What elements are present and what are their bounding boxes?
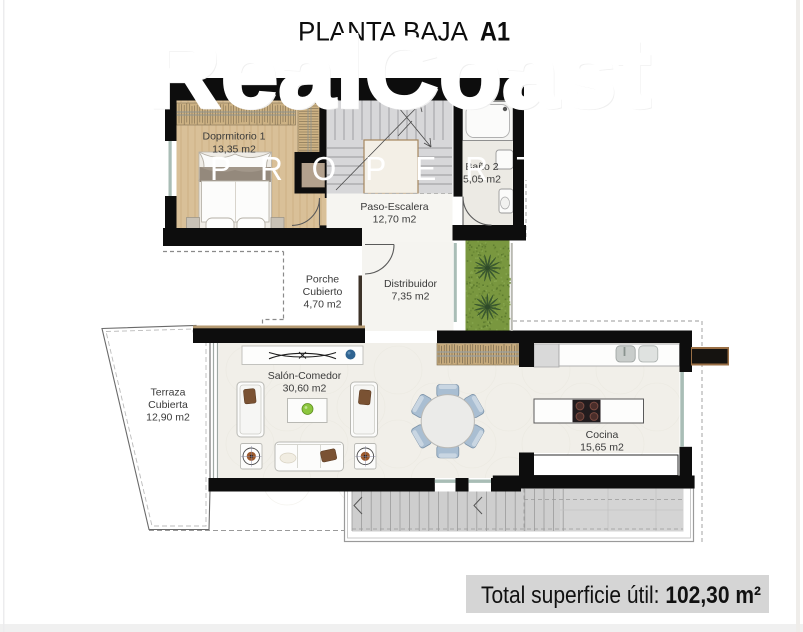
svg-text:Distribuidor: Distribuidor: [384, 278, 438, 290]
svg-text:Porche: Porche: [306, 274, 339, 286]
svg-text:12,90 m2: 12,90 m2: [146, 412, 190, 424]
svg-text:12,70 m2: 12,70 m2: [373, 214, 417, 226]
svg-text:Cubierta: Cubierta: [148, 399, 188, 411]
svg-text:RealCoast: RealCoast: [146, 17, 651, 129]
svg-text:Doprmitorio 1: Doprmitorio 1: [202, 131, 265, 143]
svg-text:Terraza: Terraza: [150, 387, 185, 399]
svg-text:7,35 m2: 7,35 m2: [392, 291, 430, 303]
svg-text:4,70 m2: 4,70 m2: [304, 299, 342, 311]
svg-text:30,60 m2: 30,60 m2: [283, 383, 327, 395]
svg-text:Total superficie útil: 102,30: Total superficie útil: 102,30 m²: [481, 582, 761, 609]
svg-text:Cocina: Cocina: [586, 429, 619, 441]
svg-text:PROPERTIES: PROPERTIES: [210, 150, 702, 187]
svg-text:Paso-Escalera: Paso-Escalera: [360, 201, 428, 213]
svg-text:Salón-Comedor: Salón-Comedor: [268, 370, 342, 382]
svg-text:15,65 m2: 15,65 m2: [580, 442, 624, 454]
svg-text:Cubierto: Cubierto: [303, 286, 343, 298]
